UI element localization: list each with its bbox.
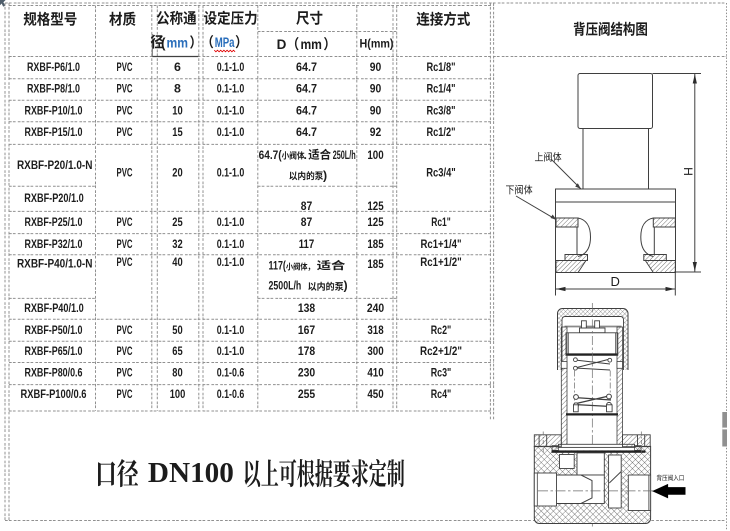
svg-text:D: D bbox=[611, 274, 620, 289]
svg-text:100: 100 bbox=[367, 148, 383, 162]
svg-text:230: 230 bbox=[298, 365, 315, 379]
svg-text:Rc1/4": Rc1/4" bbox=[427, 82, 456, 96]
svg-text:318: 318 bbox=[367, 323, 383, 337]
svg-text:0.1-1.0: 0.1-1.0 bbox=[217, 60, 245, 74]
svg-text:125: 125 bbox=[367, 215, 383, 229]
svg-text:RXBF-P100/0.6: RXBF-P100/0.6 bbox=[21, 387, 87, 401]
svg-text:Rc1+1/2": Rc1+1/2" bbox=[420, 255, 462, 269]
svg-text:PVC: PVC bbox=[117, 323, 133, 337]
svg-text:64.7: 64.7 bbox=[296, 125, 317, 139]
svg-text:RXBF-P25/1.0: RXBF-P25/1.0 bbox=[25, 215, 83, 229]
svg-text:RXBF-P10/1.0: RXBF-P10/1.0 bbox=[25, 104, 83, 118]
svg-text:Rc3/4": Rc3/4" bbox=[426, 166, 456, 180]
svg-text:Rc3/8": Rc3/8" bbox=[427, 104, 456, 118]
svg-text:50: 50 bbox=[172, 323, 182, 337]
svg-text:H(mm): H(mm) bbox=[360, 37, 394, 51]
svg-text:64.7(: 64.7( bbox=[259, 148, 283, 162]
svg-text:PVC: PVC bbox=[117, 365, 133, 379]
svg-text:0.1-1.0: 0.1-1.0 bbox=[217, 215, 245, 229]
svg-text:RXBF-P6/1.0: RXBF-P6/1.0 bbox=[27, 60, 80, 74]
svg-text:RXBF-P20/1.0: RXBF-P20/1.0 bbox=[24, 191, 84, 205]
svg-text:100: 100 bbox=[170, 387, 186, 401]
svg-text:87: 87 bbox=[301, 199, 313, 213]
svg-text:450: 450 bbox=[367, 387, 383, 401]
svg-text:mm: mm bbox=[167, 35, 189, 50]
svg-text:117(: 117( bbox=[269, 259, 287, 273]
svg-text:65: 65 bbox=[172, 344, 182, 358]
svg-text:PVC: PVC bbox=[117, 104, 133, 118]
svg-text:.: . bbox=[303, 148, 306, 162]
svg-text:(: ( bbox=[161, 35, 166, 50]
svg-text:Rc2+1/2": Rc2+1/2" bbox=[420, 344, 462, 358]
svg-text:300: 300 bbox=[367, 344, 383, 358]
svg-text:PVC: PVC bbox=[117, 125, 133, 139]
svg-text:PVC: PVC bbox=[117, 255, 133, 269]
svg-text:185: 185 bbox=[367, 257, 383, 271]
svg-text:0.1-1.0: 0.1-1.0 bbox=[217, 255, 245, 269]
svg-text:MPa: MPa bbox=[215, 35, 235, 50]
svg-text:RXBF-P65/1.0: RXBF-P65/1.0 bbox=[25, 344, 83, 358]
svg-text:PVC: PVC bbox=[117, 215, 133, 229]
svg-text:32: 32 bbox=[172, 237, 182, 251]
svg-text:250L/h: 250L/h bbox=[333, 148, 356, 162]
svg-text:87: 87 bbox=[301, 215, 313, 229]
svg-text:40: 40 bbox=[172, 255, 182, 269]
svg-text:138: 138 bbox=[298, 301, 315, 315]
svg-text:PVC: PVC bbox=[117, 60, 133, 74]
svg-text:): ) bbox=[344, 279, 348, 293]
svg-text:RXBF-P20/1.0-N: RXBF-P20/1.0-N bbox=[17, 158, 93, 172]
svg-text:20: 20 bbox=[172, 166, 182, 180]
svg-text:15: 15 bbox=[172, 125, 182, 139]
svg-text:Rc1/2": Rc1/2" bbox=[427, 125, 456, 139]
svg-text:Rc2": Rc2" bbox=[431, 323, 452, 337]
svg-text:H: H bbox=[681, 167, 695, 176]
svg-text:PVC: PVC bbox=[117, 166, 133, 180]
svg-text:0.1-1.0: 0.1-1.0 bbox=[217, 82, 245, 96]
svg-text:64.7: 64.7 bbox=[296, 104, 317, 118]
svg-text:0.1-1.0: 0.1-1.0 bbox=[217, 323, 245, 337]
svg-text:mm: mm bbox=[300, 37, 322, 52]
svg-text:0.1-0.6: 0.1-0.6 bbox=[217, 387, 245, 401]
svg-text:Rc1/8": Rc1/8" bbox=[427, 60, 456, 74]
svg-text:80: 80 bbox=[172, 365, 182, 379]
svg-text:64.7: 64.7 bbox=[296, 82, 317, 96]
svg-text:PVC: PVC bbox=[117, 82, 133, 96]
svg-text:Rc1+1/4": Rc1+1/4" bbox=[421, 237, 462, 251]
svg-text:0.1-0.6: 0.1-0.6 bbox=[217, 365, 245, 379]
svg-text:255: 255 bbox=[298, 387, 315, 401]
svg-text:240: 240 bbox=[367, 301, 384, 315]
svg-text:125: 125 bbox=[367, 199, 383, 213]
svg-text:25: 25 bbox=[172, 215, 182, 229]
svg-text:PVC: PVC bbox=[117, 387, 133, 401]
svg-text:D: D bbox=[277, 37, 287, 52]
svg-text:90: 90 bbox=[370, 60, 382, 74]
svg-text:92: 92 bbox=[370, 125, 382, 139]
svg-text:Rc1": Rc1" bbox=[431, 215, 451, 229]
svg-text:DN100: DN100 bbox=[148, 458, 234, 489]
svg-text:Rc3": Rc3" bbox=[431, 365, 452, 379]
svg-text:RXBF-P40/1.0-N: RXBF-P40/1.0-N bbox=[17, 257, 93, 271]
svg-text:167: 167 bbox=[298, 323, 315, 337]
svg-text:RXBF-P8/1.0: RXBF-P8/1.0 bbox=[27, 82, 80, 96]
svg-text:64.7: 64.7 bbox=[296, 60, 317, 74]
svg-text:8: 8 bbox=[174, 82, 181, 96]
svg-text:PVC: PVC bbox=[117, 237, 133, 251]
svg-text:10: 10 bbox=[172, 104, 182, 118]
svg-text:RXBF-P50/1.0: RXBF-P50/1.0 bbox=[25, 323, 83, 337]
svg-text:185: 185 bbox=[367, 237, 383, 251]
svg-text:2500L/h: 2500L/h bbox=[269, 279, 302, 293]
svg-text:117: 117 bbox=[299, 237, 315, 251]
svg-text:0.1-1.0: 0.1-1.0 bbox=[217, 166, 245, 180]
svg-text:0.1-1.0: 0.1-1.0 bbox=[217, 237, 245, 251]
svg-text:PVC: PVC bbox=[117, 344, 133, 358]
svg-text:Rc4": Rc4" bbox=[431, 387, 452, 401]
svg-text:RXBF-P32/1.0: RXBF-P32/1.0 bbox=[25, 237, 83, 251]
svg-text:178: 178 bbox=[298, 344, 315, 358]
svg-text:RXBF-P15/1.0: RXBF-P15/1.0 bbox=[25, 125, 83, 139]
svg-text:90: 90 bbox=[370, 104, 382, 118]
svg-text:0.1-1.0: 0.1-1.0 bbox=[217, 104, 245, 118]
svg-text:RXBF-P40/1.0: RXBF-P40/1.0 bbox=[24, 301, 84, 315]
svg-text:): ) bbox=[323, 168, 327, 182]
svg-text:410: 410 bbox=[367, 365, 383, 379]
svg-text:0.1-1.0: 0.1-1.0 bbox=[217, 344, 245, 358]
svg-text:6: 6 bbox=[174, 60, 181, 74]
svg-text:0.1-1.0: 0.1-1.0 bbox=[217, 125, 245, 139]
svg-text:RXBF-P80/0.6: RXBF-P80/0.6 bbox=[25, 365, 83, 379]
svg-text:90: 90 bbox=[370, 82, 382, 96]
